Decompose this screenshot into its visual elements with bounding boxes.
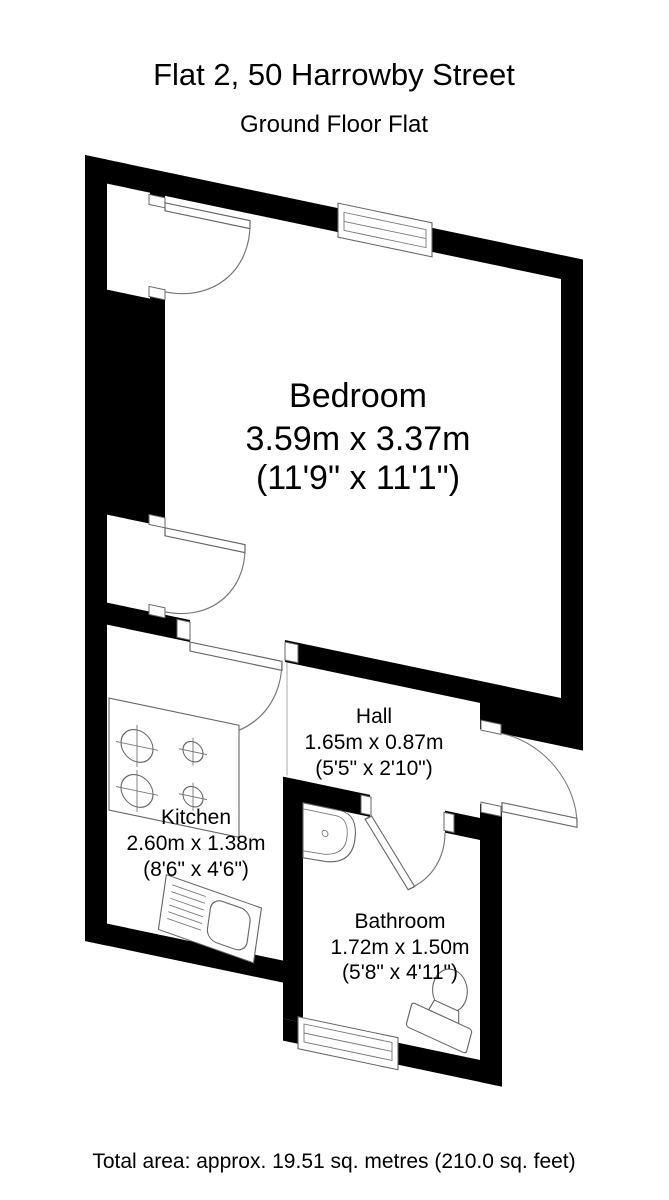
floor-plan-svg: Flat 2, 50 Harrowby Street Ground Floor … — [0, 0, 669, 1200]
total-area-note: Total area: approx. 19.51 sq. metres (21… — [92, 1150, 575, 1173]
hall-imperial: (5'5" x 2'10") — [315, 757, 432, 780]
wall-top — [85, 155, 583, 284]
bathroom-sink-icon — [303, 803, 355, 869]
plan-subtitle: Ground Floor Flat — [240, 111, 428, 138]
floor-plan-page: Flat 2, 50 Harrowby Street Ground Floor … — [0, 0, 669, 1200]
hall-label: Hall 1.65m x 0.87m (5'5" x 2'10") — [305, 705, 444, 780]
bathroom-window-icon — [298, 1017, 398, 1070]
bedroom-name: Bedroom — [289, 377, 427, 415]
bedroom-door-mid-icon — [165, 528, 245, 629]
kitchen-imperial: (8'6" x 4'6") — [143, 858, 249, 881]
entrance-door-icon — [502, 734, 577, 828]
bathroom-door-icon — [365, 815, 445, 898]
bathroom-name: Bathroom — [354, 910, 445, 933]
bedroom-metric: 3.59m x 3.37m — [246, 420, 471, 458]
bedroom-door-top-icon — [165, 203, 250, 310]
floor-plan-drawing — [85, 150, 583, 1109]
hall-name: Hall — [356, 705, 392, 728]
kitchen-metric: 2.60m x 1.38m — [127, 832, 266, 855]
wall-right-bathroom — [480, 804, 502, 1087]
wall-pier-left — [107, 290, 165, 527]
bedroom-label: Bedroom 3.59m x 3.37m (11'9" x 11'1") — [246, 377, 471, 497]
bedroom-window-icon — [338, 203, 432, 257]
bathroom-label: Bathroom 1.72m x 1.50m (5'8" x 4'11") — [331, 910, 470, 984]
bathroom-metric: 1.72m x 1.50m — [331, 936, 470, 959]
hall-metric: 1.65m x 0.87m — [305, 731, 444, 754]
kitchen-name: Kitchen — [161, 806, 231, 829]
wall-left — [85, 155, 107, 946]
plan-title: Flat 2, 50 Harrowby Street — [153, 57, 515, 92]
wall-right-bedroom — [561, 255, 583, 742]
bedroom-imperial: (11'9" x 11'1") — [256, 459, 460, 497]
bathroom-imperial: (5'8" x 4'11") — [342, 961, 458, 984]
